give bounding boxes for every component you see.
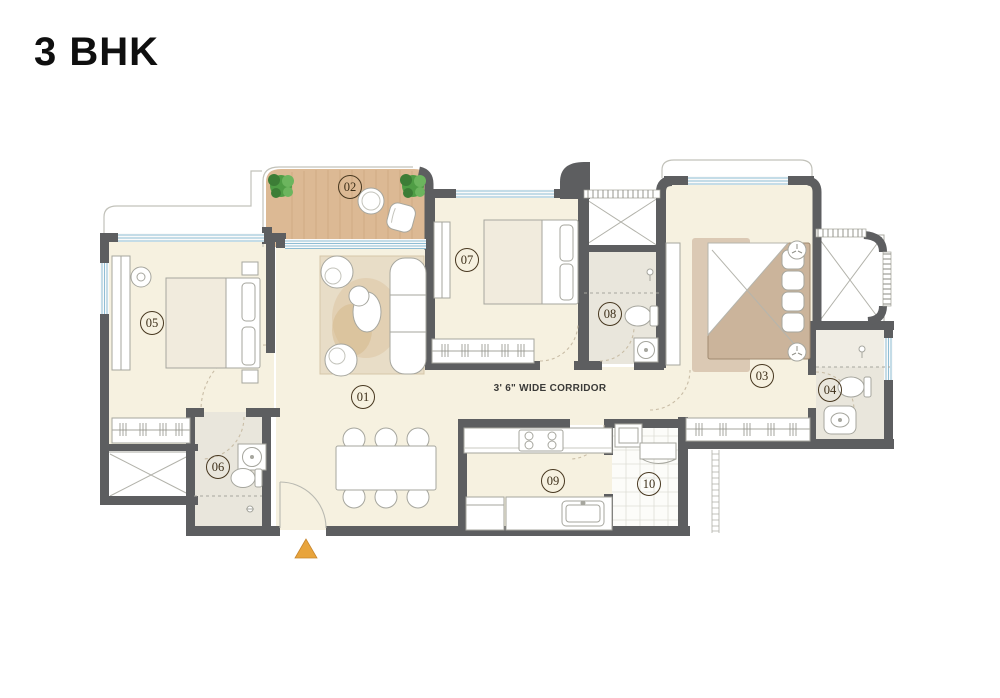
room-label-05: 05	[140, 311, 164, 335]
toilet	[625, 306, 651, 326]
washing-machine	[640, 443, 676, 459]
room-number: 09	[547, 474, 560, 489]
ledge-outline-topleft	[104, 171, 262, 241]
room-number: 06	[212, 460, 225, 475]
room-label-02: 02	[338, 175, 362, 199]
room-number: 05	[146, 316, 159, 331]
floorplan-canvas: 3 BHK	[0, 0, 1000, 698]
floorplan-drawing	[0, 0, 1000, 698]
room-label-03: 03	[750, 364, 774, 388]
room-number: 03	[756, 369, 769, 384]
room-number: 02	[344, 180, 357, 195]
dining-table	[336, 446, 436, 490]
room-label-07: 07	[455, 248, 479, 272]
side-ledge-rails	[712, 450, 719, 533]
room-label-10: 10	[637, 472, 661, 496]
bathroom-04-shower-area	[816, 329, 890, 367]
toilet	[231, 469, 255, 488]
toilet	[838, 377, 864, 397]
entrance-arrow-icon	[295, 539, 317, 558]
ledge-outline-topright	[662, 160, 812, 178]
room-number: 01	[357, 390, 370, 405]
corridor-label: 3' 6" WIDE CORRIDOR	[455, 383, 645, 394]
room-number: 07	[461, 253, 474, 268]
room-label-04: 04	[818, 378, 842, 402]
room-label-09: 09	[541, 469, 565, 493]
plant-icon	[268, 174, 294, 198]
room-label-01: 01	[351, 385, 375, 409]
room-number: 04	[824, 383, 837, 398]
room-label-06: 06	[206, 455, 230, 479]
plant-icon	[400, 174, 426, 198]
refrigerator	[466, 497, 504, 530]
side-ledge-rungs	[712, 454, 719, 531]
sofa	[390, 258, 426, 374]
room-number: 10	[643, 477, 656, 492]
room-label-08: 08	[598, 302, 622, 326]
room-number: 08	[604, 307, 617, 322]
